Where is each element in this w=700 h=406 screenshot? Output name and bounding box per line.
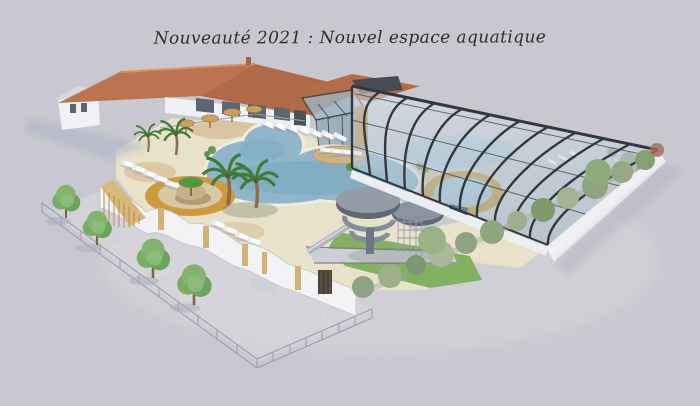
- annex-window: [70, 104, 76, 113]
- chimney: [246, 57, 251, 65]
- palm-shadow: [222, 202, 278, 218]
- hedge-bush: [531, 198, 555, 222]
- hedge-tree: [585, 159, 611, 185]
- hedge-bush: [352, 276, 374, 298]
- hedge-bush: [455, 232, 477, 254]
- pool-deep-water: [240, 139, 284, 161]
- wood-insert: [158, 208, 164, 230]
- tree-shadow: [129, 277, 159, 286]
- hedge-bush: [406, 255, 426, 275]
- hedge-bush: [557, 187, 579, 209]
- tree-shadow: [45, 217, 71, 225]
- wood-insert: [242, 244, 248, 266]
- door: [294, 110, 306, 126]
- hedge-bush: [378, 264, 402, 288]
- wood-insert: [262, 252, 267, 274]
- aquatic-park-render: [0, 0, 700, 406]
- hedge-bush: [611, 161, 633, 183]
- render-canvas: Nouveauté 2021 : Nouvel espace aquatique: [0, 0, 700, 406]
- wood-insert: [203, 226, 209, 248]
- tree-shadow: [76, 244, 102, 252]
- annex-window: [81, 103, 87, 112]
- wood-insert: [295, 266, 301, 290]
- hedge-bush: [507, 211, 527, 231]
- hedge-tree: [418, 226, 446, 254]
- page-title: Nouveauté 2021 : Nouvel espace aquatique: [0, 27, 700, 49]
- tower-column: [366, 228, 374, 254]
- tree-shadow: [170, 304, 200, 313]
- hedge-bush: [480, 220, 504, 244]
- red-bush: [650, 143, 664, 157]
- window: [196, 98, 214, 113]
